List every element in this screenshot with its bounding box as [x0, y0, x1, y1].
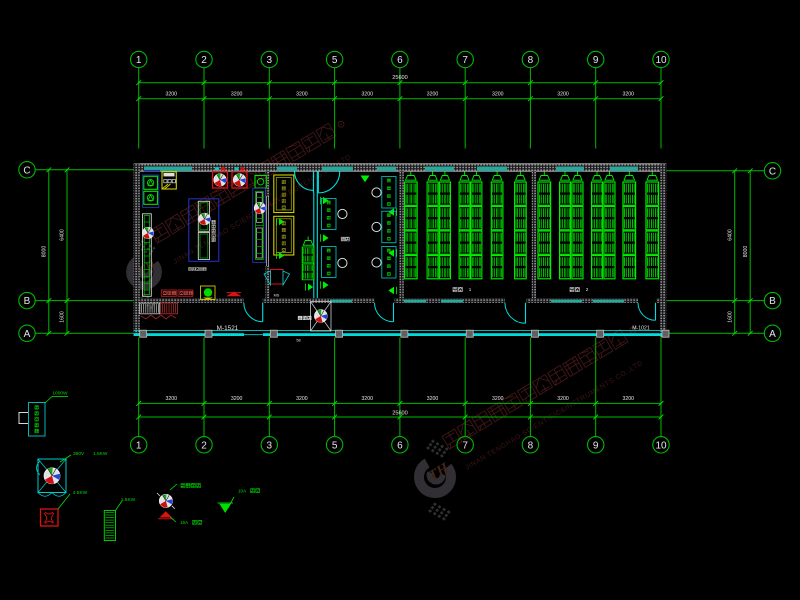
svg-text:9: 9 [593, 440, 599, 451]
svg-text:58: 58 [296, 338, 300, 342]
svg-text:380V: 380V [73, 451, 85, 457]
svg-text:3200: 3200 [492, 91, 504, 97]
svg-text:M-1521: M-1521 [217, 325, 239, 332]
svg-text:3: 3 [267, 440, 273, 451]
svg-text:3200: 3200 [361, 396, 373, 402]
svg-text:2: 2 [586, 287, 589, 292]
svg-text:3200: 3200 [166, 396, 178, 402]
svg-text:3200: 3200 [231, 91, 243, 97]
svg-text:7: 7 [462, 55, 468, 66]
svg-text:C: C [769, 166, 776, 177]
svg-text:3200: 3200 [557, 396, 569, 402]
svg-text:A: A [24, 329, 31, 340]
svg-text:3200: 3200 [557, 91, 569, 97]
svg-text:7: 7 [462, 440, 468, 451]
svg-text:3200: 3200 [623, 396, 635, 402]
svg-text:4.5KW: 4.5KW [73, 490, 88, 496]
svg-text:1: 1 [469, 287, 472, 292]
svg-text:3200: 3200 [166, 91, 178, 97]
svg-text:10: 10 [655, 440, 667, 451]
svg-text:3200: 3200 [427, 396, 439, 402]
svg-text:25600: 25600 [392, 410, 408, 416]
svg-text:6400: 6400 [728, 229, 734, 241]
svg-text:C: C [23, 165, 30, 176]
svg-text:8: 8 [528, 440, 534, 451]
svg-text:16A: 16A [180, 520, 189, 525]
svg-text:2: 2 [201, 55, 207, 66]
svg-text:25600: 25600 [392, 75, 408, 81]
svg-text:3: 3 [267, 55, 273, 66]
svg-text:1600: 1600 [60, 311, 66, 323]
svg-text:1600: 1600 [728, 311, 734, 323]
svg-text:10A: 10A [238, 488, 247, 493]
svg-text:8000: 8000 [42, 246, 48, 258]
svg-text:3200: 3200 [231, 396, 243, 402]
svg-text:1: 1 [136, 55, 142, 66]
svg-text:3200: 3200 [427, 91, 439, 97]
svg-text:3200: 3200 [296, 396, 308, 402]
svg-text:2: 2 [201, 440, 207, 451]
svg-text:A: A [769, 329, 776, 340]
svg-text:3200: 3200 [492, 396, 504, 402]
svg-text:B: B [769, 296, 776, 307]
svg-text:3200: 3200 [623, 91, 635, 97]
svg-text:3200: 3200 [296, 91, 308, 97]
svg-text:8000: 8000 [743, 246, 749, 258]
svg-text:3200: 3200 [361, 91, 373, 97]
svg-text:10: 10 [655, 55, 667, 66]
svg-text:5: 5 [332, 440, 338, 451]
svg-text:MS: MS [274, 294, 280, 298]
svg-text:6400: 6400 [60, 229, 66, 241]
svg-text:6: 6 [397, 55, 403, 66]
svg-text:1000W: 1000W [52, 390, 68, 396]
svg-text:M-1021: M-1021 [632, 325, 650, 331]
svg-text:8: 8 [528, 55, 534, 66]
svg-text:1.5KW: 1.5KW [93, 451, 108, 457]
svg-text:9: 9 [593, 55, 599, 66]
svg-text:5: 5 [332, 55, 338, 66]
svg-text:6: 6 [397, 440, 403, 451]
svg-text:B: B [24, 296, 31, 307]
svg-text:1: 1 [136, 440, 142, 451]
svg-text:1.6KW: 1.6KW [121, 497, 136, 503]
